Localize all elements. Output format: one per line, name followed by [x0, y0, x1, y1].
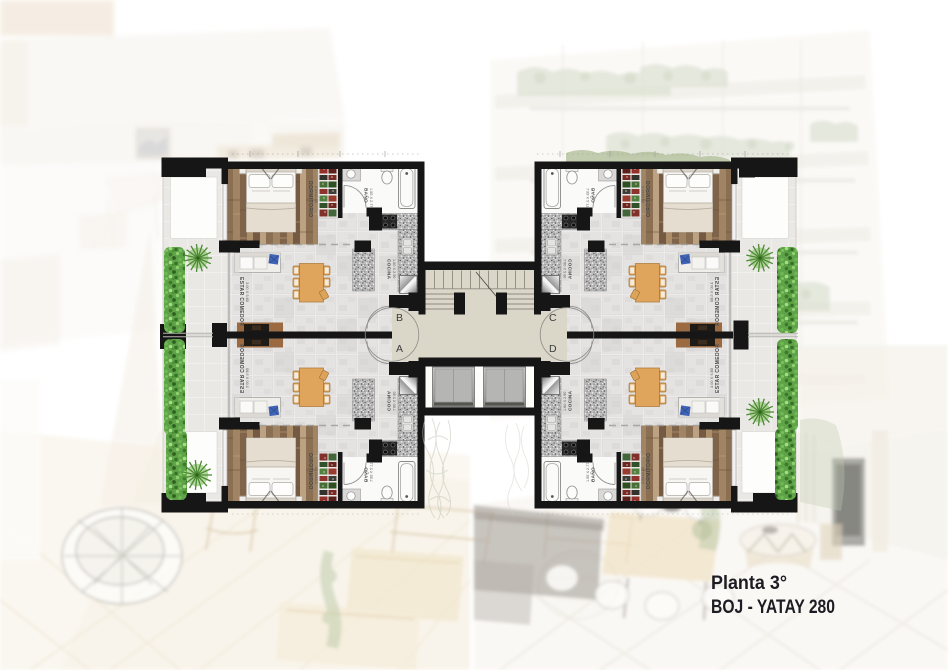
svg-text:B: B	[396, 312, 403, 324]
svg-text:C: C	[549, 312, 557, 324]
svg-text:Planta 3°: Planta 3°	[711, 573, 787, 594]
svg-text:BOJ - YATAY 280: BOJ - YATAY 280	[711, 597, 835, 618]
svg-text:D: D	[549, 343, 557, 355]
svg-text:A: A	[396, 343, 403, 355]
